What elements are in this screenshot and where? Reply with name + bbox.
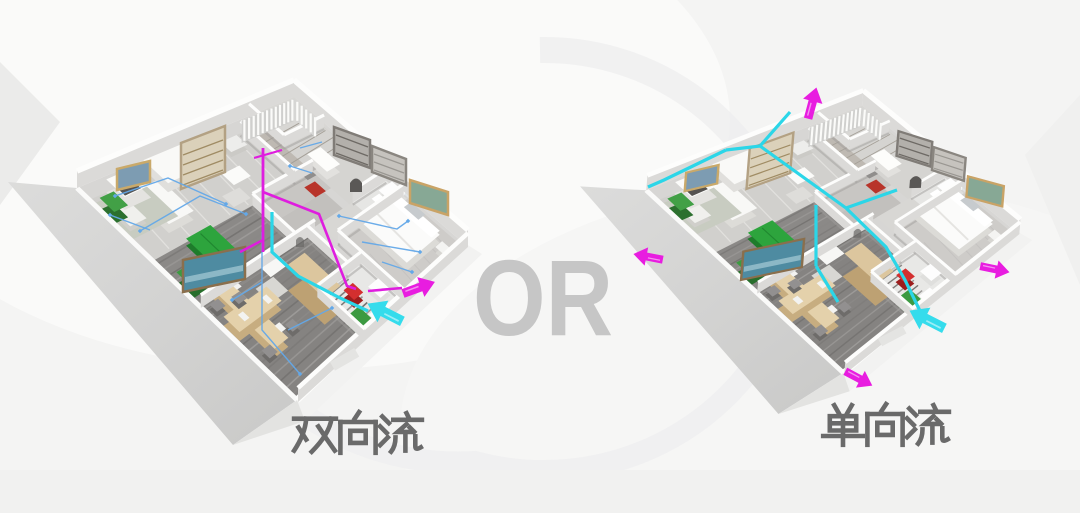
svg-text:OR: OR [473, 237, 613, 358]
